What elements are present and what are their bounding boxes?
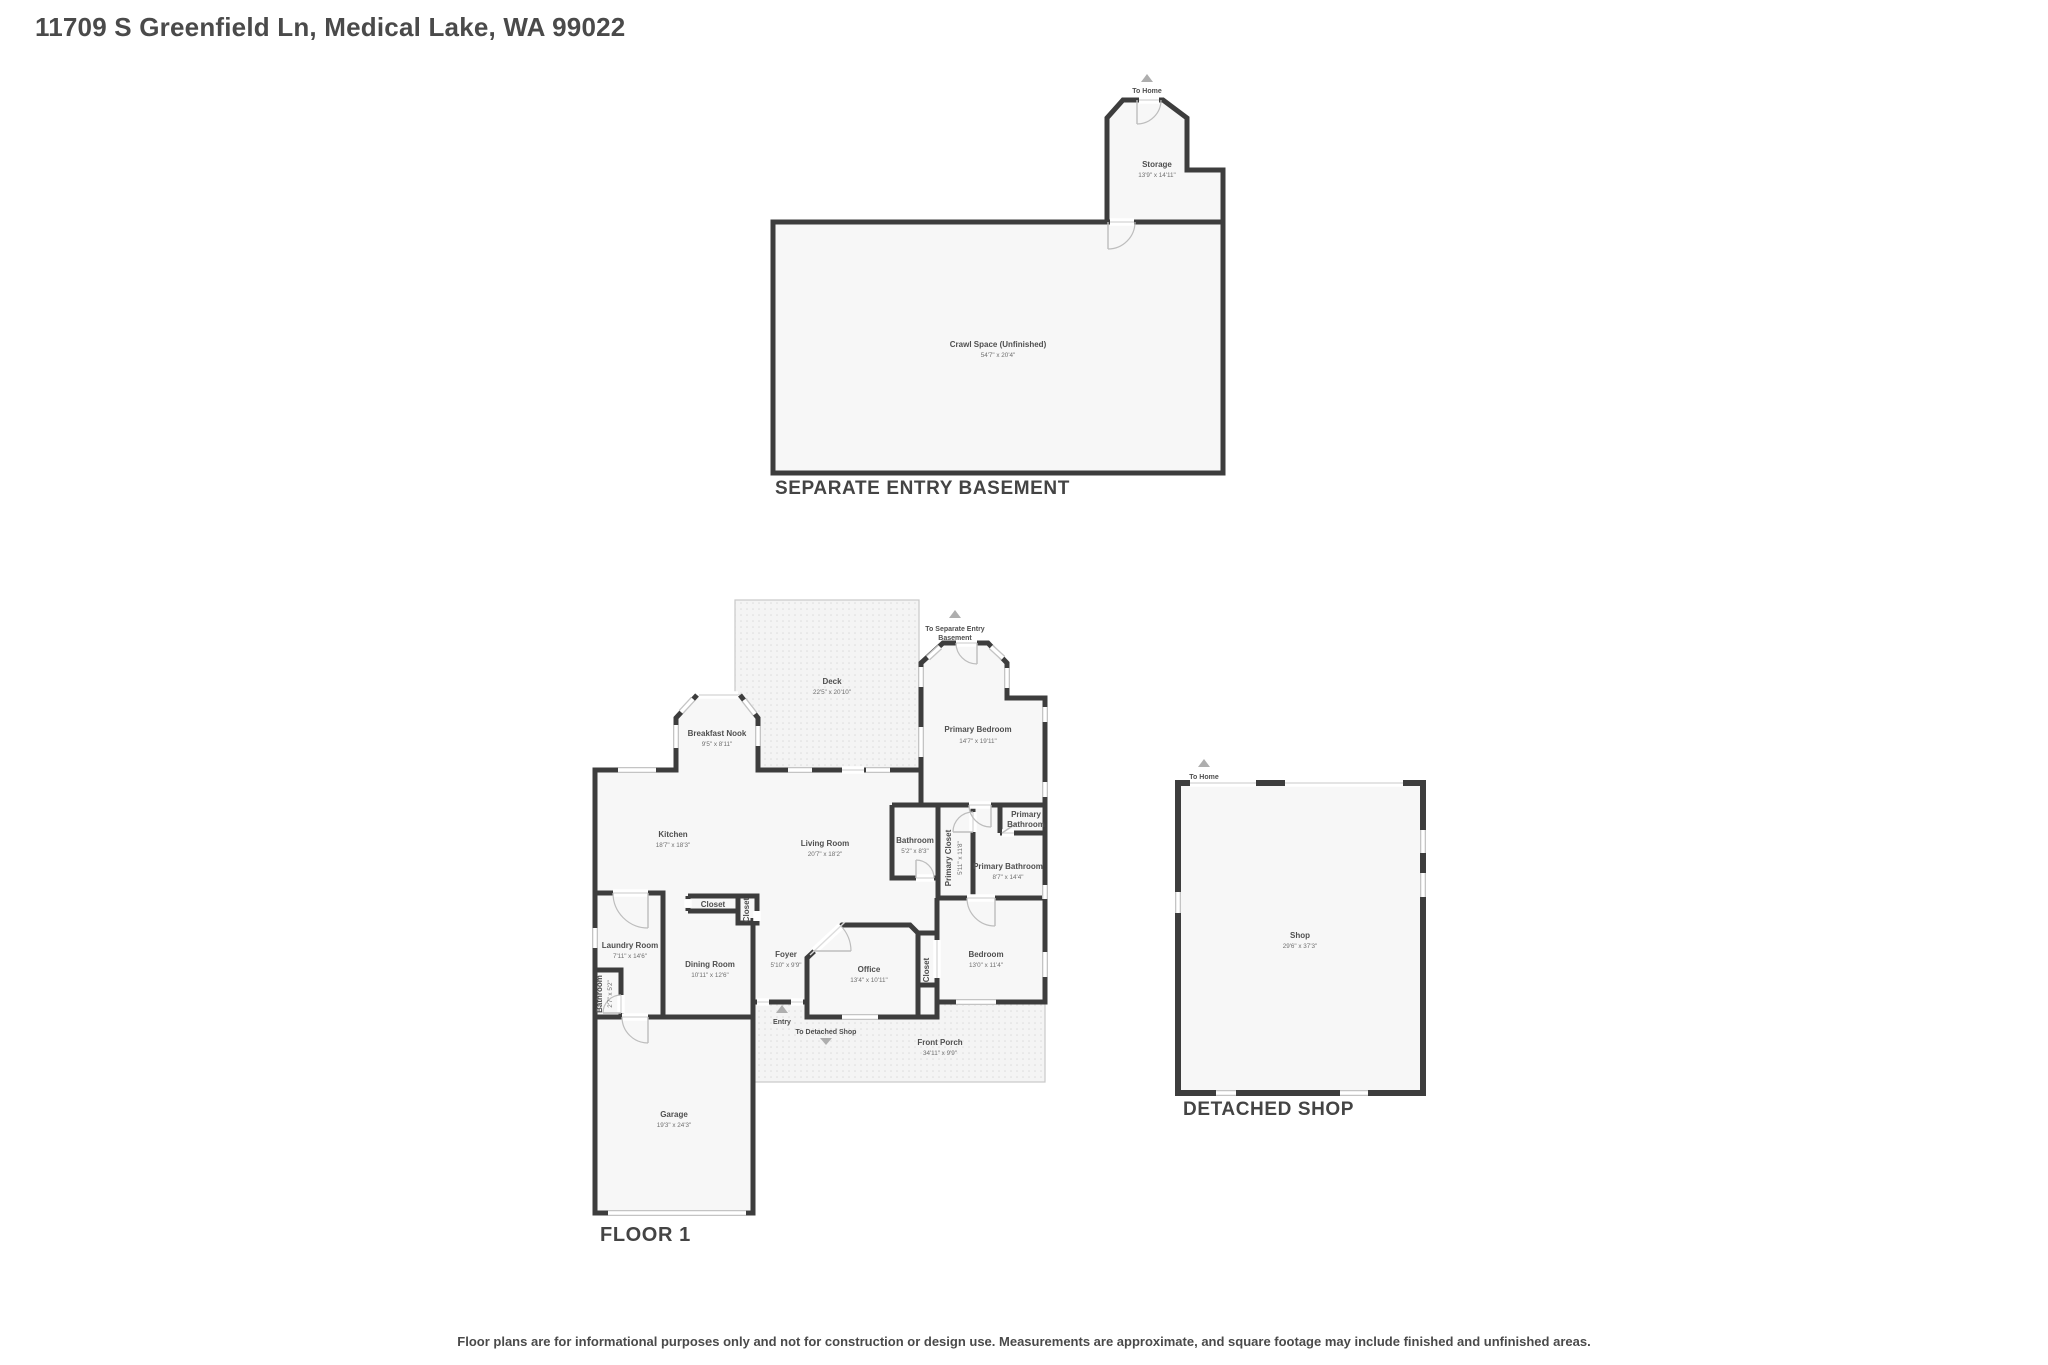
room-label-bathroom: Bathroom <box>896 836 934 845</box>
room-label-primary-bathroom: Primary Bathroom <box>973 862 1043 871</box>
room-label-breakfast-nook: Breakfast Nook <box>688 729 747 738</box>
disclaimer-text: Floor plans are for informational purpos… <box>0 1334 2048 1349</box>
room-dims-deck: 22'5" x 20'10" <box>813 689 851 696</box>
room-dims-laundry: 7'11" x 14'6" <box>613 953 647 960</box>
room-label-front-porch: Front Porch <box>917 1038 962 1047</box>
room-label-storage: Storage <box>1142 160 1172 169</box>
room-label-living-room: Living Room <box>801 839 849 848</box>
room-label-closet-hall: Closet <box>701 900 726 909</box>
detached-shop-floor-plan: To Home Shop 29'6" x 37'3" <box>1165 748 1435 1103</box>
room-dims-garage: 19'3" x 24'3" <box>657 1122 692 1129</box>
room-dims-storage: 13'9" x 14'11" <box>1138 172 1176 179</box>
room-label-crawl-space: Crawl Space (Unfinished) <box>950 340 1047 349</box>
room-label-closet-foyer: Closet <box>742 897 751 922</box>
triangle-up-icon <box>949 610 961 618</box>
entry-marker: Entry <box>773 1019 791 1026</box>
to-basement-marker-line2: Basement <box>938 635 972 642</box>
room-dims-bathroom: 5'2" x 8'3" <box>901 848 929 855</box>
room-dims-foyer: 5'10" x 9'9" <box>770 962 801 969</box>
room-label-primary-bathroom-wc-line2: Bathroom <box>1007 820 1045 829</box>
room-dims-bathroom-small: 2'7" x 5'2" <box>607 980 614 1008</box>
room-label-deck: Deck <box>822 677 842 686</box>
room-dims-office: 13'4" x 10'11" <box>850 977 888 984</box>
room-label-dining: Dining Room <box>685 960 735 969</box>
room-label-shop: Shop <box>1290 931 1310 940</box>
room-label-office: Office <box>858 965 881 974</box>
room-dims-primary-closet: 5'11" x 11'8" <box>957 841 964 875</box>
shop-plan-title: DETACHED SHOP <box>1183 1099 1354 1121</box>
room-label-kitchen: Kitchen <box>658 830 687 839</box>
room-label-bathroom-small: Bathroom <box>595 975 604 1013</box>
room-dims-crawl-space: 54'7" x 20'4" <box>981 352 1016 359</box>
floor1-plan-title: FLOOR 1 <box>600 1224 691 1247</box>
room-label-laundry: Laundry Room <box>602 941 658 950</box>
basement-to-home-marker: To Home <box>1132 88 1162 95</box>
room-dims-breakfast-nook: 9'5" x 8'11" <box>702 741 733 748</box>
shop-to-home-marker: To Home <box>1189 774 1219 781</box>
room-dims-dining: 10'11" x 12'6" <box>691 972 729 979</box>
room-label-closet-bedroom: Closet <box>922 957 931 982</box>
room-dims-bedroom: 13'0" x 11'4" <box>969 962 1003 969</box>
room-dims-primary-bedroom: 14'7" x 19'11" <box>959 738 997 745</box>
room-dims-front-porch: 34'11" x 9'9" <box>923 1050 957 1057</box>
room-label-primary-closet: Primary Closet <box>944 829 953 886</box>
room-label-primary-bathroom-wc-line1: Primary <box>1011 810 1041 819</box>
room-label-primary-bedroom: Primary Bedroom <box>944 725 1011 734</box>
room-label-bedroom: Bedroom <box>968 950 1003 959</box>
room-dims-primary-bathroom: 8'7" x 14'4" <box>992 874 1023 881</box>
triangle-up-icon <box>1198 759 1210 767</box>
page-title: 11709 S Greenfield Ln, Medical Lake, WA … <box>35 12 625 43</box>
floor-plan-page: 11709 S Greenfield Ln, Medical Lake, WA … <box>0 0 2048 1365</box>
room-dims-living-room: 20'7" x 18'2" <box>808 851 843 858</box>
to-basement-marker-line1: To Separate Entry <box>925 626 984 633</box>
triangle-up-icon <box>1141 74 1153 82</box>
room-label-foyer: Foyer <box>775 950 797 959</box>
room-dims-shop: 29'6" x 37'3" <box>1283 943 1318 950</box>
floor1-floor-plan: To Separate Entry Basement Entry To Deta… <box>575 590 1065 1240</box>
room-label-garage: Garage <box>660 1110 688 1119</box>
basement-plan-title: SEPARATE ENTRY BASEMENT <box>775 478 1070 500</box>
to-detached-shop-marker: To Detached Shop <box>796 1029 857 1036</box>
basement-floor-plan: To Home Storage 13'9" x 14'11" Crawl Spa… <box>755 55 1245 505</box>
room-dims-kitchen: 18'7" x 18'3" <box>656 842 691 849</box>
